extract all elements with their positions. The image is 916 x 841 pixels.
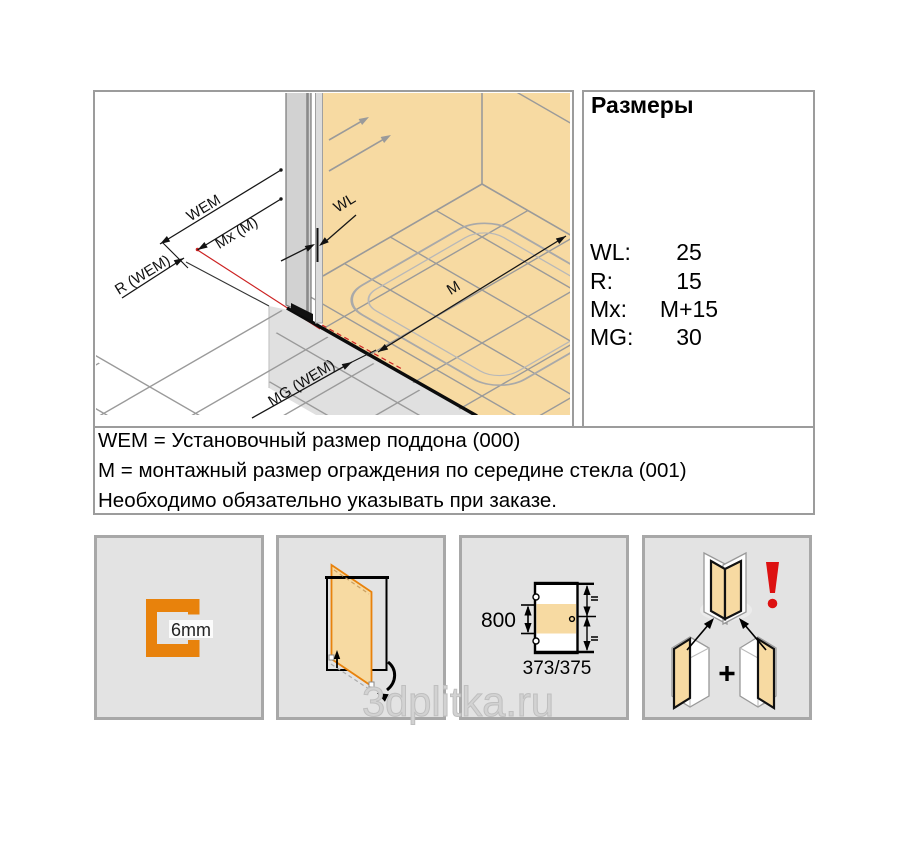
- svg-text:WEM = Установочный размер подд: WEM = Установочный размер поддона (000): [98, 429, 520, 452]
- svg-text:25: 25: [676, 239, 702, 265]
- svg-text:M+15: M+15: [660, 296, 718, 322]
- svg-text:М = монтажный размер ограждени: М = монтажный размер ограждения по серед…: [98, 459, 687, 482]
- svg-text:3dplitka.ru: 3dplitka.ru: [362, 678, 554, 725]
- svg-text:15: 15: [676, 268, 702, 294]
- svg-text:MG:: MG:: [590, 324, 633, 350]
- svg-text:R:: R:: [590, 268, 613, 294]
- svg-text:800: 800: [481, 609, 516, 632]
- svg-text:WL:: WL:: [590, 239, 631, 265]
- svg-text:373/375: 373/375: [523, 658, 592, 679]
- svg-text:Необходимо обязательно указыва: Необходимо обязательно указывать при зак…: [98, 489, 557, 512]
- svg-text:30: 30: [676, 324, 702, 350]
- svg-text:Размеры: Размеры: [591, 92, 693, 118]
- svg-text:6mm: 6mm: [171, 620, 211, 640]
- svg-text:Mx:: Mx:: [590, 296, 627, 322]
